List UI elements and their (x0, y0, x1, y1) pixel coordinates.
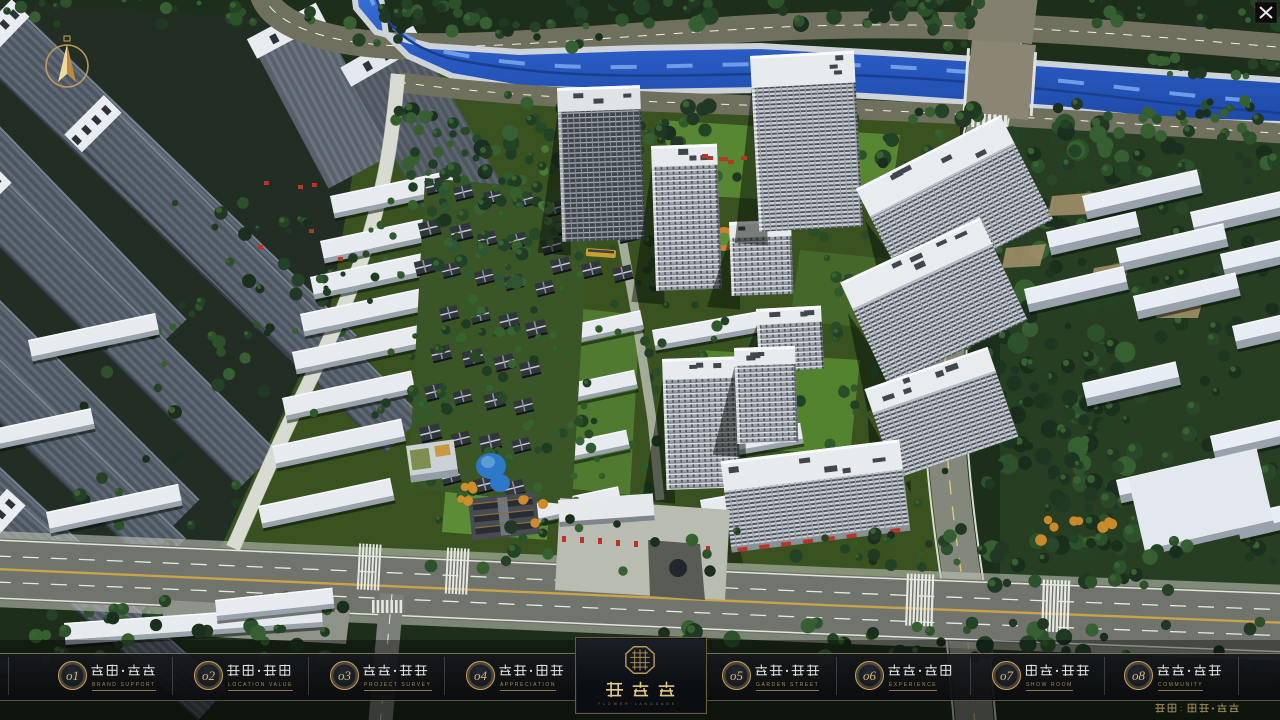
svg-text::: : (1180, 704, 1182, 713)
